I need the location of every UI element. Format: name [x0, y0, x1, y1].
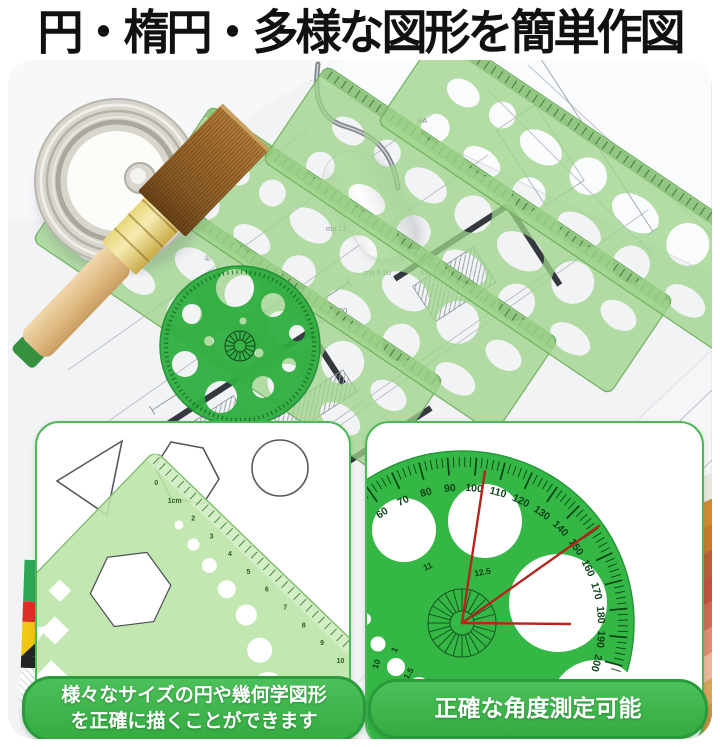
- ruler-number: 8: [302, 622, 306, 629]
- ruler-number: 3: [210, 533, 214, 540]
- degree-label: 90: [444, 482, 457, 495]
- pencil-black: [21, 656, 36, 669]
- degree-tick: [618, 631, 628, 632]
- circle-outline: [252, 440, 308, 496]
- product-photo: RAmq 11.64mq 6.20mq 6.20②mq 27.20SF. 3.6…: [8, 60, 712, 739]
- ruler-number: 0: [154, 480, 158, 487]
- degree-tick: [618, 614, 628, 615]
- ruler-number: 9: [320, 640, 324, 647]
- circle-template: [155, 261, 325, 431]
- left-badge-line1: 様々なサイズの円や幾何学図形: [61, 683, 326, 709]
- degree-label: 180: [594, 606, 607, 625]
- ruler-number: 2: [191, 516, 195, 523]
- right-badge: 正確な角度測定可能: [368, 679, 708, 739]
- right-badge-text: 正確な角度測定可能: [435, 693, 642, 724]
- left-badge-line2: を正確に描くことができます: [70, 709, 317, 735]
- degree-tick: [470, 457, 471, 467]
- product-image: 円・楕円・多様な図形を簡単作図: [0, 0, 720, 747]
- ruler-number: 1cm: [168, 498, 182, 505]
- header: 円・楕円・多様な図形を簡単作図: [0, 0, 720, 58]
- page-title: 円・楕円・多様な図形を簡単作図: [38, 0, 683, 63]
- ruler-number: 4: [228, 551, 232, 558]
- ruler-number: 7: [283, 605, 287, 612]
- degree-tick: [453, 457, 454, 467]
- left-badge: 様々なサイズの円や幾何学図形 を正確に描くことができます: [22, 676, 366, 739]
- ruler-number: 10: [337, 658, 345, 665]
- degree-label: 190: [594, 630, 607, 649]
- ruler-number: 5: [246, 569, 250, 576]
- ruler-number: 6: [265, 587, 269, 594]
